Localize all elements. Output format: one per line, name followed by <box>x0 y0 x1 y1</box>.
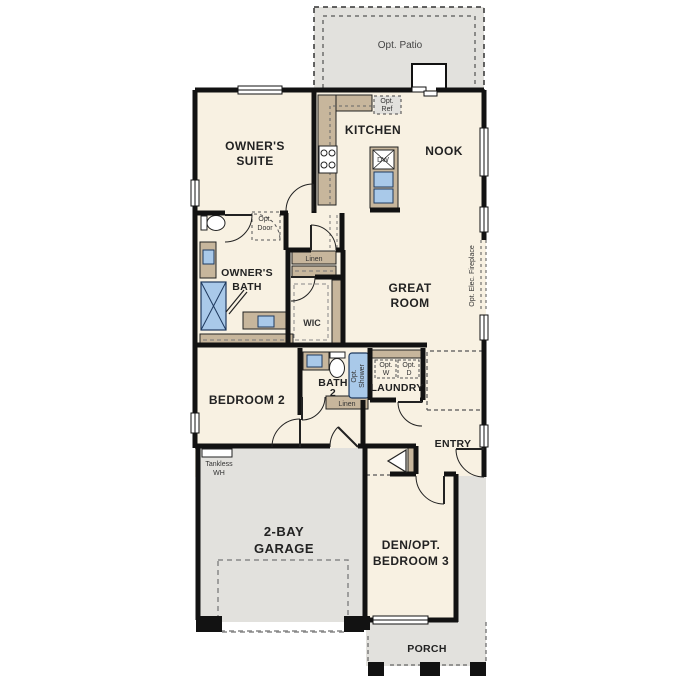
label-laundry: LAUNDRY <box>370 382 423 394</box>
label-garage-2: GARAGE <box>254 541 314 556</box>
label-opt-shower-2: Shower <box>359 363 366 387</box>
toilet-bowl <box>207 216 225 231</box>
label-dw: DW <box>377 157 389 164</box>
label-linen-upper: Linen <box>305 256 322 263</box>
bath2-toilet-bowl <box>330 359 345 378</box>
label-opt-shower-1: Opt. <box>351 369 358 382</box>
label-owners-suite-2: SUITE <box>236 154 273 168</box>
label-kitchen: KITCHEN <box>345 123 401 137</box>
label-tankless-1: Tankless <box>205 461 233 468</box>
label-opt-dryer-2: D <box>406 370 411 377</box>
label-opt-ref-1: Opt. <box>380 98 393 105</box>
toilet-tank <box>201 216 207 230</box>
patio-slider-panel <box>424 91 437 96</box>
label-den-1: DEN/OPT. <box>382 538 441 552</box>
label-owners-bath-1: OWNER'S <box>221 267 273 279</box>
hall-linen-closet <box>292 251 336 277</box>
label-great-room-1: GREAT <box>388 281 431 295</box>
tankless-water-heater <box>202 449 232 457</box>
floor-plan: Opt. Patio Opt. Ref KITCHEN NOOK OWNER'S… <box>0 0 687 687</box>
label-great-room-2: ROOM <box>391 296 430 310</box>
label-opt-ref-2: Ref <box>382 106 393 113</box>
bath2-toilet-tank <box>330 352 345 358</box>
label-bath2-2: 2 <box>330 387 336 399</box>
label-nook: NOOK <box>425 144 463 158</box>
bath2-sink <box>307 355 322 367</box>
stove <box>319 146 337 173</box>
sink-basin <box>374 172 393 187</box>
label-den-2: BEDROOM 3 <box>373 554 449 568</box>
label-owners-suite-1: OWNER'S <box>225 139 285 153</box>
label-opt-patio: Opt. Patio <box>378 40 423 51</box>
label-opt-door-2: Door <box>257 225 273 232</box>
label-opt-elec-fireplace: Opt. Elec. Fireplace <box>469 245 476 307</box>
stove-body <box>319 146 337 173</box>
walkway-floor <box>458 476 486 622</box>
label-wic: WIC <box>303 318 321 328</box>
label-tankless-2: WH <box>213 470 225 477</box>
label-owners-bath-2: BATH <box>232 281 262 293</box>
label-opt-door-1: Opt. <box>258 216 271 223</box>
label-linen-lower: Linen <box>338 401 355 408</box>
label-opt-washer-1: Opt. <box>379 362 392 369</box>
label-bedroom2: BEDROOM 2 <box>209 393 285 407</box>
label-porch: PORCH <box>407 643 446 655</box>
label-opt-dryer-1: Opt. <box>402 362 415 369</box>
kitchen-sink <box>374 172 393 203</box>
label-opt-washer-2: W <box>383 370 390 377</box>
bath-sink <box>203 250 214 264</box>
floor-plan-canvas: Opt. Patio Opt. Ref KITCHEN NOOK OWNER'S… <box>0 0 687 687</box>
label-entry: ENTRY <box>435 438 472 450</box>
bath-sink2 <box>258 316 274 327</box>
label-garage-1: 2-BAY <box>264 524 304 539</box>
laundry-counter <box>372 350 424 358</box>
sink-basin <box>374 189 393 203</box>
